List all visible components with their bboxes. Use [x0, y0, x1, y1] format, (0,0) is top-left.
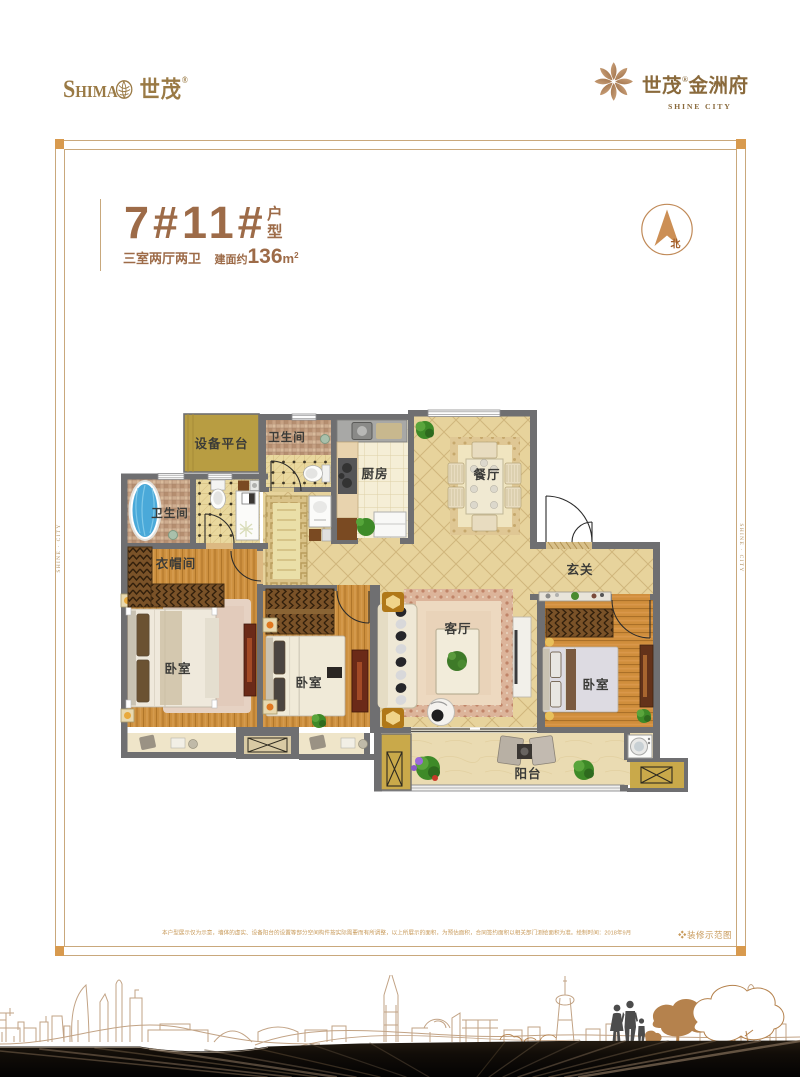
- svg-text:客厅: 客厅: [443, 621, 471, 636]
- svg-text:卫生间: 卫生间: [151, 506, 189, 520]
- svg-text:卫生间: 卫生间: [268, 430, 306, 444]
- svg-text:卧室: 卧室: [582, 677, 609, 692]
- svg-text:厨房: 厨房: [361, 466, 388, 481]
- svg-text:卧室: 卧室: [164, 661, 191, 676]
- svg-text:卧室: 卧室: [295, 675, 322, 690]
- svg-text:设备平台: 设备平台: [194, 436, 248, 451]
- svg-text:餐厅: 餐厅: [472, 467, 500, 482]
- svg-text:玄关: 玄关: [566, 562, 593, 577]
- svg-text:阳台: 阳台: [514, 766, 541, 781]
- svg-text:衣帽间: 衣帽间: [156, 556, 197, 571]
